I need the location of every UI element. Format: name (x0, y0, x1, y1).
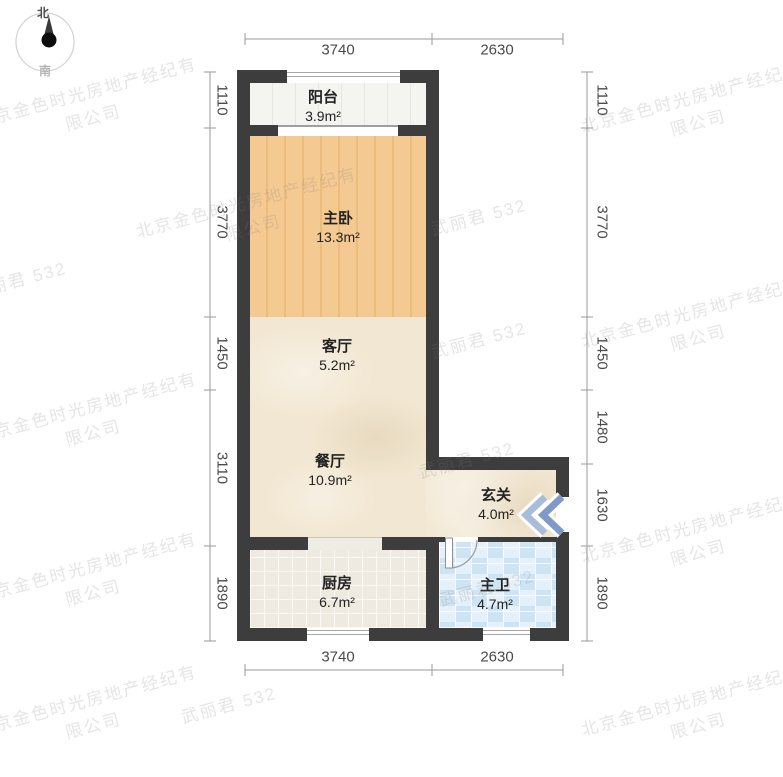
wall-bath-top-left (439, 537, 445, 542)
watermark: 北京金色时光房地产经纪有 限公司 (0, 517, 241, 644)
wall-right-below-door (556, 532, 569, 641)
watermark: 北京金色时光房地产经纪有 限公司 (577, 659, 783, 768)
wall-kitchen-top-left (237, 537, 308, 550)
dim-top-1: 3740 (321, 42, 354, 59)
wall-kitchen-bath-divider (426, 537, 439, 641)
room-label-balcony: 阳台 3.9m² (305, 89, 341, 125)
wall-balcony-divider-left (237, 125, 278, 136)
room-name: 厨房 (319, 575, 355, 594)
dim-right-2: 3770 (594, 205, 611, 238)
kitchen-opening (308, 537, 382, 551)
room-name: 玄关 (478, 487, 514, 506)
room-area: 4.7m² (477, 596, 513, 614)
compass-icon (0, 0, 110, 110)
watermark: 北京金色时光房地产经纪有 限公司 (0, 357, 241, 484)
dim-left-5: 1890 (214, 576, 231, 609)
bathroom-window (483, 628, 530, 641)
dim-left-3: 1450 (214, 336, 231, 369)
room-area: 4.0m² (478, 506, 514, 524)
dim-left-4: 3110 (214, 452, 231, 484)
dim-right-3: 1450 (594, 336, 611, 369)
floorplan-page: { "compass": { "north": "北", "south": "南… (0, 0, 783, 734)
watermark: 北京金色时光房地产经纪有 限公司 (0, 650, 241, 777)
room-name: 客厅 (319, 338, 355, 357)
room-name: 主卧 (316, 210, 360, 229)
room-name: 主卫 (477, 577, 513, 596)
wall-bath-top-right (478, 537, 556, 542)
room-name: 阳台 (305, 89, 341, 108)
dim-right-1: 1110 (594, 84, 611, 115)
dim-left-1: 1110 (214, 84, 231, 115)
wall-right-above-door (556, 457, 569, 497)
kitchen-window (307, 628, 369, 641)
dim-left-2: 3770 (214, 205, 231, 238)
room-area: 13.3m² (316, 229, 360, 247)
dim-right-5: 1630 (594, 488, 611, 521)
room-label-kitchen: 厨房 6.7m² (319, 575, 355, 611)
balcony-window (287, 70, 400, 83)
room-label-entry: 玄关 4.0m² (478, 487, 514, 523)
room-area: 3.9m² (305, 108, 341, 126)
room-area: 10.9m² (308, 472, 352, 490)
watermark: 武丽君 532 (428, 193, 529, 243)
wall-jut (426, 457, 569, 470)
dim-bottom-1: 3740 (321, 649, 354, 666)
room-area: 6.7m² (319, 594, 355, 612)
dim-right-6: 1890 (594, 576, 611, 609)
room-name: 餐厅 (308, 453, 352, 472)
watermark: 武丽君 532 (178, 681, 279, 731)
dim-bottom-2: 2630 (480, 649, 513, 666)
compass-south-label: 南 (39, 62, 51, 79)
balcony-sliding-door (278, 125, 398, 136)
wall-left (237, 70, 250, 641)
dim-right-4: 1480 (594, 410, 611, 443)
room-label-dining: 餐厅 10.9m² (308, 453, 352, 489)
watermark: 北京金色时光房地产经纪有 限公司 (0, 42, 241, 169)
dim-top-2: 2630 (480, 42, 513, 59)
room-label-bedroom: 主卧 13.3m² (316, 210, 360, 246)
room-label-bath: 主卫 4.7m² (477, 577, 513, 613)
compass-north-label: 北 (37, 4, 49, 21)
wall-balcony-divider-right (398, 125, 439, 136)
watermark: 武丽君 532 (428, 316, 529, 366)
room-label-living: 客厅 5.2m² (319, 338, 355, 374)
watermark: 武丽君 532 (0, 256, 70, 306)
room-area: 5.2m² (319, 357, 355, 375)
